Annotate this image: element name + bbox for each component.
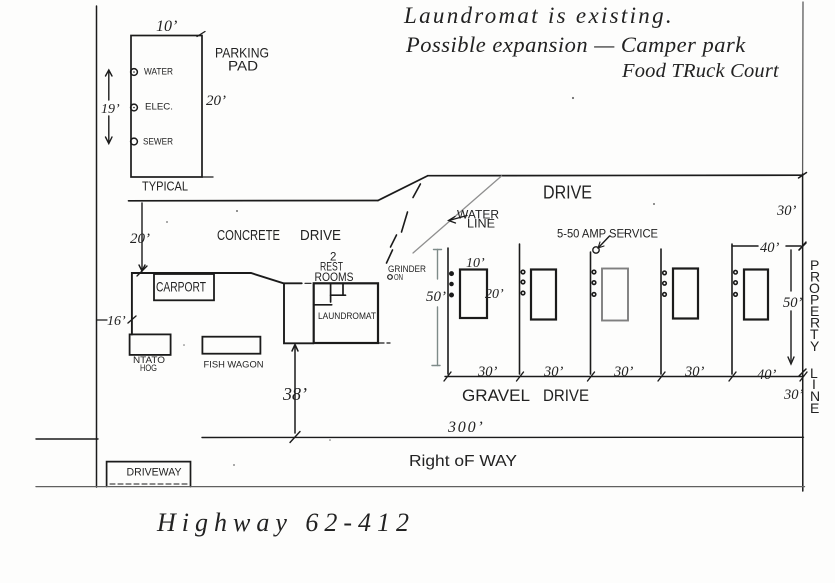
- svg-text:20’: 20’: [485, 287, 504, 302]
- svg-text:16’: 16’: [107, 314, 126, 329]
- svg-text:ON: ON: [394, 272, 403, 282]
- svg-text:40’: 40’: [757, 367, 777, 383]
- svg-text:10’: 10’: [466, 256, 485, 271]
- svg-text:DRIVE: DRIVE: [543, 387, 589, 405]
- svg-text:30’: 30’: [776, 203, 797, 219]
- svg-text:30’: 30’: [543, 364, 564, 380]
- svg-text:20’: 20’: [130, 231, 150, 247]
- svg-text:SEWER: SEWER: [143, 137, 173, 147]
- svg-text:10’: 10’: [156, 18, 177, 35]
- svg-text:20’: 20’: [206, 93, 226, 109]
- svg-text:DRIVE: DRIVE: [300, 227, 341, 244]
- svg-text:30’: 30’: [684, 364, 705, 380]
- svg-text:HOG: HOG: [140, 363, 157, 373]
- svg-text:DRIVEWAY: DRIVEWAY: [127, 467, 183, 479]
- svg-text:50’: 50’: [426, 289, 446, 305]
- svg-text:19’: 19’: [101, 102, 120, 117]
- svg-text:30’: 30’: [783, 387, 804, 403]
- svg-text:ROOMS: ROOMS: [315, 272, 354, 284]
- svg-text:E: E: [810, 400, 819, 416]
- svg-text:38’: 38’: [282, 384, 307, 404]
- svg-text:CONCRETE: CONCRETE: [217, 227, 280, 244]
- svg-text:Laundromat is existing.: Laundromat is existing.: [403, 3, 674, 28]
- svg-text:LAUNDROMAT: LAUNDROMAT: [318, 311, 376, 321]
- svg-text:ELEC.: ELEC.: [145, 102, 173, 112]
- svg-text:FISH WAGON: FISH WAGON: [204, 360, 264, 370]
- svg-text:40’: 40’: [760, 240, 780, 256]
- svg-text:30’: 30’: [613, 364, 634, 380]
- svg-text:Food TRuck Court: Food TRuck Court: [621, 60, 780, 82]
- svg-text:GRAVEL: GRAVEL: [462, 387, 530, 405]
- svg-text:CARPORT: CARPORT: [156, 279, 206, 295]
- svg-text:30’: 30’: [477, 364, 498, 380]
- svg-text:Y: Y: [810, 338, 820, 354]
- svg-text:LINE: LINE: [467, 219, 495, 231]
- svg-text:TYPICAL: TYPICAL: [142, 179, 188, 194]
- svg-text:Possible expansion — Camper pa: Possible expansion — Camper park: [405, 32, 746, 57]
- svg-text:Highway 62-412: Highway 62-412: [156, 508, 415, 537]
- svg-text:WATER: WATER: [144, 67, 173, 77]
- svg-text:PAD: PAD: [228, 58, 258, 74]
- svg-text:Right oF WAY: Right oF WAY: [409, 453, 517, 470]
- svg-text:50’: 50’: [783, 295, 803, 311]
- svg-text:300’: 300’: [447, 419, 485, 436]
- svg-text:DRIVE: DRIVE: [543, 183, 592, 203]
